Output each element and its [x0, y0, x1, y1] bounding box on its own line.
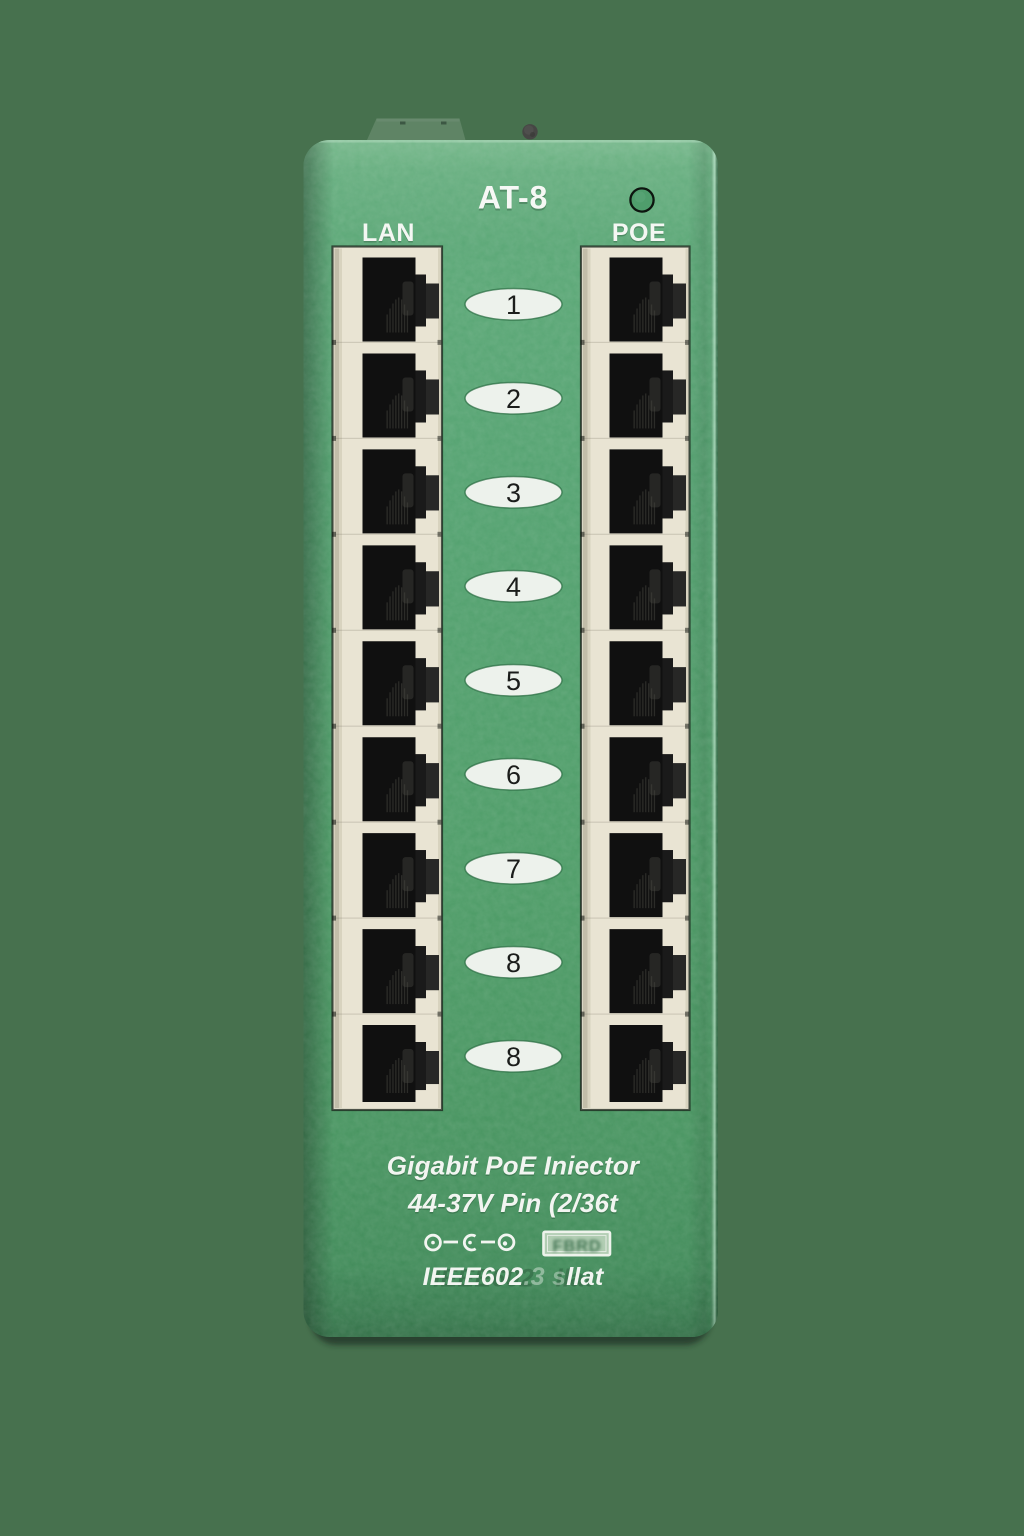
svg-text:FBRD: FBRD — [552, 1237, 601, 1255]
svg-text:IEEE602.3 sllat: IEEE602.3 sllat — [423, 1263, 605, 1291]
svg-text:Gigabit PoE Iniector: Gigabit PoE Iniector — [387, 1151, 641, 1181]
svg-text:1: 1 — [506, 290, 521, 320]
svg-text:6: 6 — [506, 760, 521, 790]
svg-text:8: 8 — [506, 1042, 521, 1072]
svg-text:3: 3 — [506, 478, 521, 508]
svg-text:LAN: LAN — [362, 219, 415, 247]
svg-text:44-37V Pin (2/36t: 44-37V Pin (2/36t — [407, 1188, 619, 1218]
svg-text:POE: POE — [612, 219, 666, 247]
svg-text:8: 8 — [506, 948, 521, 978]
svg-text:4: 4 — [506, 572, 521, 602]
svg-text:2: 2 — [506, 384, 521, 414]
svg-text:7: 7 — [506, 854, 521, 884]
svg-text:AT-8: AT-8 — [478, 180, 548, 216]
svg-text:5: 5 — [506, 666, 521, 696]
